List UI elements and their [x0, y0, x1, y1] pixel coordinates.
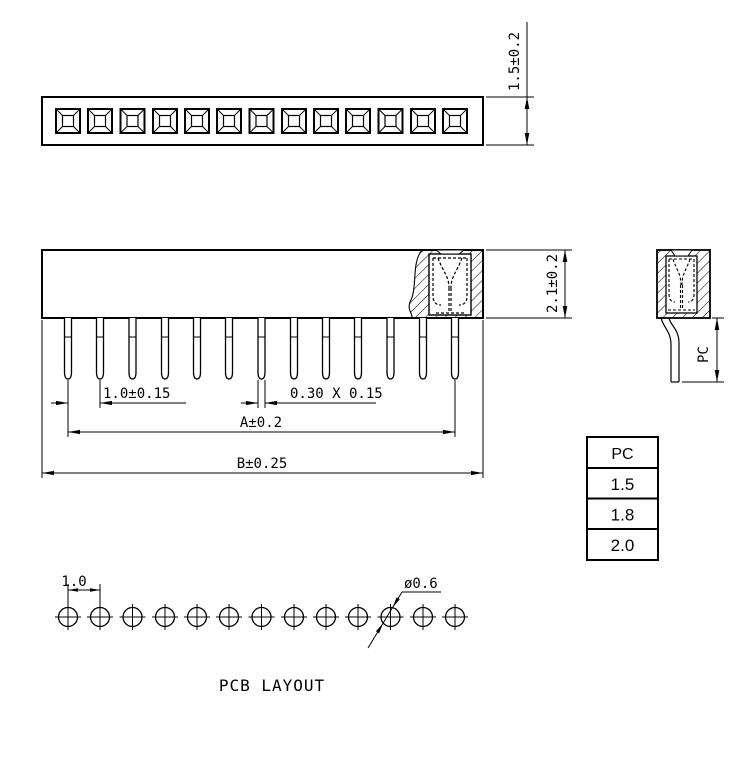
side-view: 2.1±0.2 1.0±0.15 0.30 X 0.15: [42, 250, 572, 478]
dim-span-b-label: B±0.25: [237, 456, 288, 472]
pcb-layout: 1.0 ø0.6 PCB LAYOUT: [55, 574, 468, 695]
technical-drawing-page: 1.5±0.2: [0, 0, 755, 772]
pins: [65, 318, 459, 379]
top-view: 1.5±0.2: [42, 22, 534, 145]
dim-pin-pitch-label: 1.0±0.15: [103, 386, 170, 402]
dim-hole-diameter-label: ø0.6: [404, 576, 438, 592]
cavity-chamfer: [436, 250, 464, 254]
socket-cavity-section: [429, 254, 471, 315]
connector-drawing: 1.5±0.2: [0, 0, 755, 772]
pcb-layout-caption: PCB LAYOUT: [219, 676, 325, 695]
pc-table-row-2: 1.8: [611, 506, 635, 525]
dim-insulator-height-label: 1.5±0.2: [507, 32, 523, 91]
dim-body-height-label: 2.1±0.2: [545, 254, 561, 313]
pc-table-header: PC: [611, 446, 633, 463]
detail-cavity-chamfer: [671, 250, 692, 256]
section-cutaway: [409, 250, 482, 318]
contact-detail-view: PC: [657, 250, 724, 382]
pc-table: PC 1.5 1.8 2.0: [587, 437, 658, 560]
pcb-holes: [55, 604, 468, 630]
dim-hole-pitch-label: 1.0: [61, 574, 86, 590]
dim-span-a-label: A±0.2: [240, 415, 282, 431]
dim-pin-cross-section-label: 0.30 X 0.15: [290, 386, 383, 402]
pc-table-row-1: 1.5: [611, 475, 635, 494]
pc-table-row-3: 2.0: [611, 536, 635, 555]
dim-pin-length-label: PC: [696, 346, 712, 363]
detail-solder-tail: [661, 318, 679, 382]
